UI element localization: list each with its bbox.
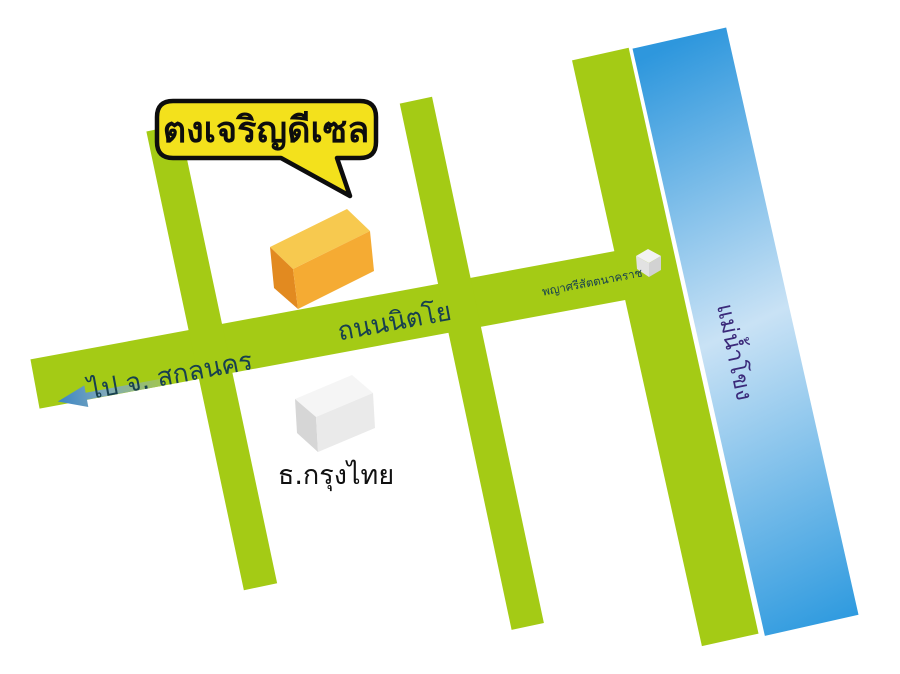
bank-building bbox=[295, 375, 375, 452]
map-canvas: ถนนนิตโย ไป จ. สกลนคร พญาศรีสัตตนาคราช ธ… bbox=[0, 0, 900, 674]
road-middle-vertical bbox=[400, 97, 544, 630]
location-map: ถนนนิตโย ไป จ. สกลนคร พญาศรีสัตตนาคราช ธ… bbox=[0, 0, 900, 674]
callout-label: ตงเจริญดีเซล bbox=[163, 110, 370, 151]
diesel-shop-building bbox=[270, 209, 374, 309]
bank-label: ธ.กรุงไทย bbox=[278, 460, 394, 492]
